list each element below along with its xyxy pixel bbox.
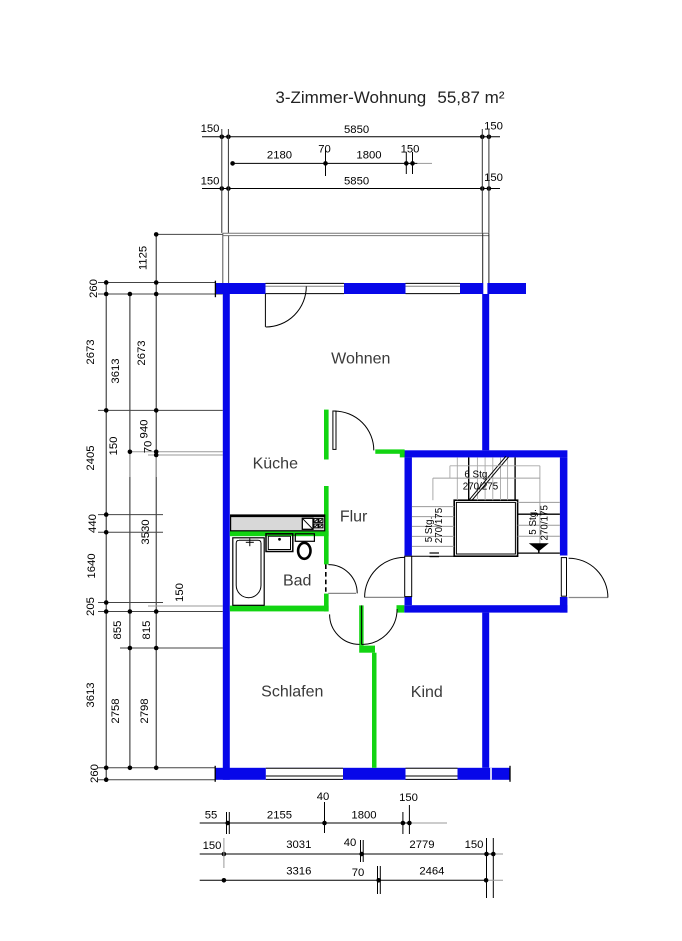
svg-text:2673: 2673	[136, 340, 148, 365]
svg-text:6 Stg.: 6 Stg.	[464, 470, 490, 481]
svg-text:2405: 2405	[85, 445, 97, 470]
svg-text:205: 205	[85, 597, 97, 616]
svg-text:3613: 3613	[110, 358, 122, 383]
svg-text:Küche: Küche	[253, 456, 298, 473]
svg-text:270/175: 270/175	[539, 505, 550, 541]
svg-text:Bad: Bad	[283, 573, 311, 590]
svg-text:150: 150	[174, 583, 186, 602]
svg-text:150: 150	[201, 176, 220, 188]
svg-text:270/275: 270/275	[463, 481, 499, 492]
svg-text:40: 40	[344, 837, 357, 849]
svg-text:Schlafen: Schlafen	[261, 684, 323, 701]
svg-text:3530: 3530	[140, 519, 152, 544]
svg-text:40: 40	[317, 791, 330, 803]
svg-text:5 Stg.: 5 Stg.	[528, 509, 539, 535]
svg-text:70: 70	[318, 144, 331, 156]
svg-text:2673: 2673	[85, 339, 97, 364]
svg-text:1800: 1800	[351, 810, 376, 822]
svg-text:150: 150	[465, 839, 484, 851]
svg-text:Flur: Flur	[340, 508, 368, 525]
svg-text:2779: 2779	[409, 839, 434, 851]
svg-text:260: 260	[88, 279, 100, 298]
svg-text:3316: 3316	[286, 866, 311, 878]
svg-text:150: 150	[484, 172, 503, 184]
svg-text:3613: 3613	[85, 682, 97, 707]
svg-text:70: 70	[352, 867, 365, 879]
svg-text:3-Zimmer-Wohnung: 3-Zimmer-Wohnung	[275, 88, 426, 107]
svg-text:270/175: 270/175	[434, 507, 445, 543]
svg-text:150: 150	[108, 437, 120, 456]
svg-text:5850: 5850	[344, 176, 369, 188]
svg-text:2155: 2155	[267, 810, 292, 822]
svg-text:815: 815	[141, 621, 153, 640]
svg-text:260: 260	[89, 764, 101, 783]
svg-text:3031: 3031	[286, 839, 311, 851]
svg-text:855: 855	[112, 621, 124, 640]
svg-text:Kind: Kind	[411, 684, 443, 701]
svg-text:Wohnen: Wohnen	[331, 351, 390, 368]
svg-text:2464: 2464	[419, 866, 444, 878]
svg-text:2758: 2758	[110, 698, 122, 723]
svg-text:150: 150	[201, 123, 220, 135]
svg-text:5850: 5850	[344, 124, 369, 136]
svg-text:440: 440	[87, 514, 99, 533]
svg-text:150: 150	[401, 144, 420, 156]
svg-text:70: 70	[143, 441, 155, 454]
svg-text:2798: 2798	[139, 698, 151, 723]
svg-text:1125: 1125	[138, 246, 150, 270]
svg-text:55,87 m²: 55,87 m²	[437, 88, 504, 107]
svg-text:150: 150	[399, 792, 418, 804]
svg-text:150: 150	[203, 840, 222, 852]
svg-text:1640: 1640	[86, 553, 98, 578]
svg-text:150: 150	[484, 121, 503, 133]
svg-text:940: 940	[139, 420, 151, 439]
svg-text:1800: 1800	[356, 150, 381, 162]
svg-text:2180: 2180	[267, 150, 292, 162]
svg-text:55: 55	[205, 810, 218, 822]
